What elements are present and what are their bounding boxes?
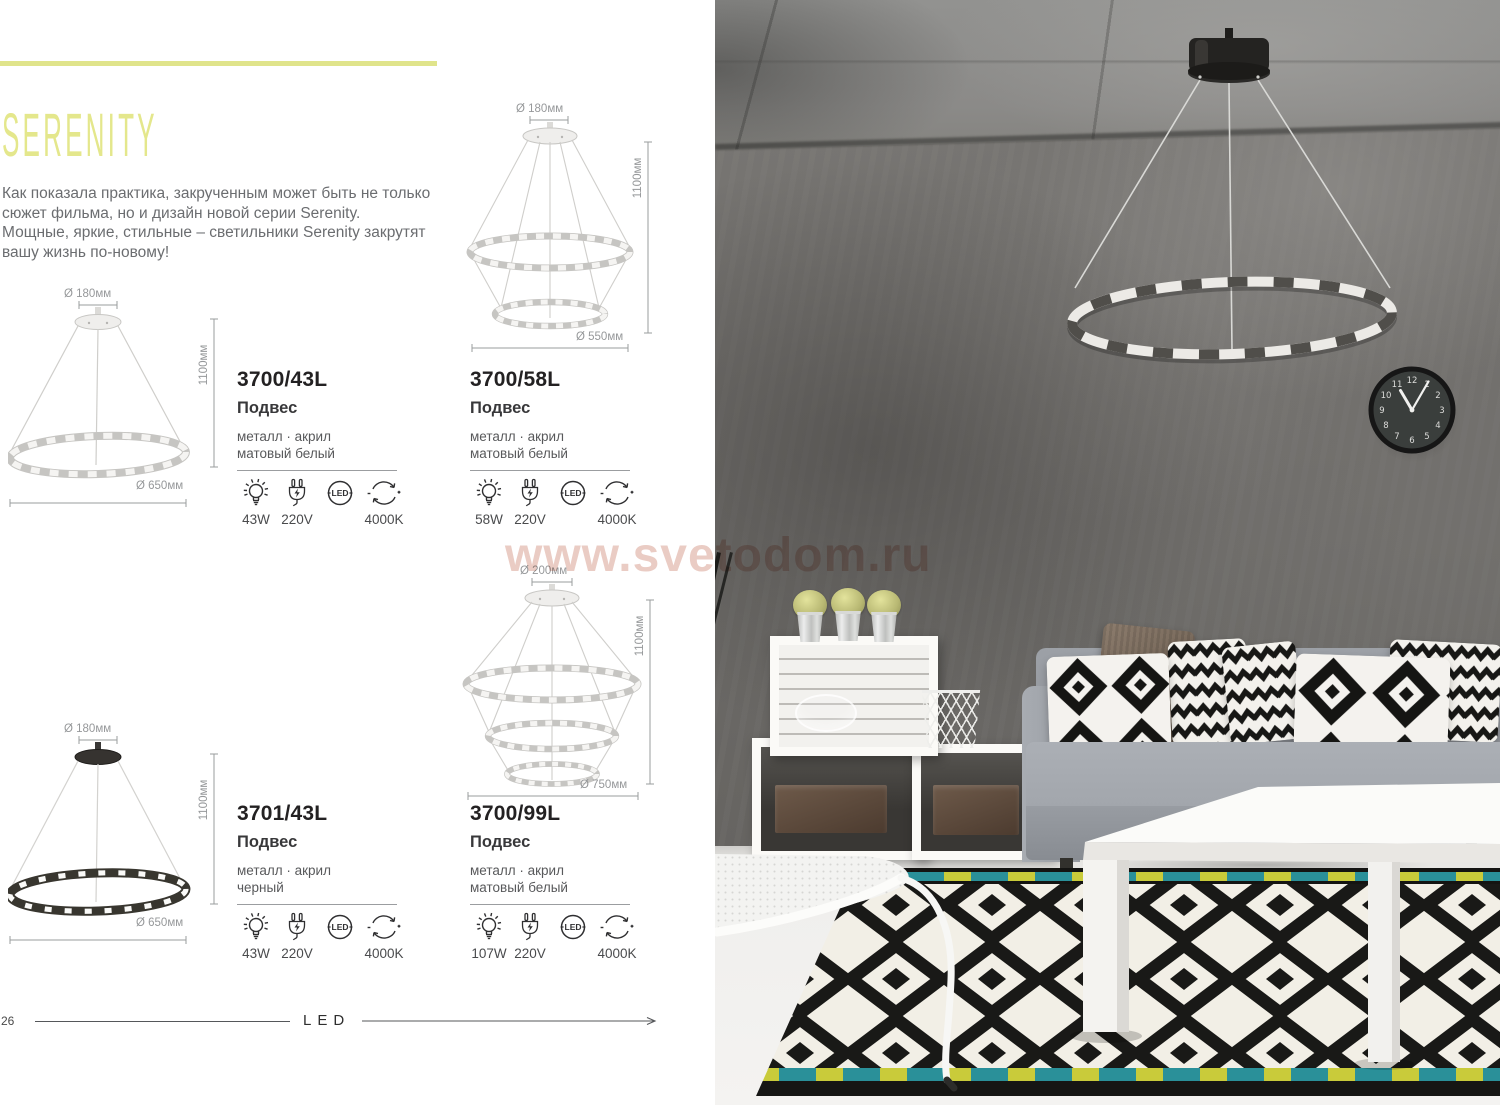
dim-label-height: 1100мм [632, 158, 644, 199]
series-title: SERENITY [2, 100, 158, 171]
clock-numeral: 2 [1435, 391, 1440, 401]
product-finish: черный [237, 879, 407, 896]
wattage-value: 43W [237, 946, 275, 961]
clock-numeral: 4 [1435, 421, 1440, 431]
led-label: LED [332, 922, 349, 932]
cord-plug-tip [947, 1080, 954, 1088]
product-materials: металл · акрил [237, 428, 407, 445]
product-type: Подвес [237, 833, 407, 852]
plug-icon [275, 476, 319, 510]
plant-bucket [834, 611, 862, 641]
dim-label-bottom: Ø 650мм [136, 917, 183, 929]
color-temp-icon [594, 910, 640, 944]
page-number: 26 [1, 1014, 14, 1028]
footer-rule-left [35, 1021, 290, 1022]
product-drawing-3700-58L: Ø 180мм 1100мм Ø 550мм [452, 90, 664, 358]
voltage-value: 220V [508, 946, 552, 961]
divider [237, 904, 397, 905]
storage-crate [770, 636, 938, 756]
led-icon: LED [319, 476, 361, 510]
color-temp-value: 4000K [361, 512, 407, 527]
ring-drawing [9, 870, 186, 914]
pendant-lamp [1060, 20, 1420, 370]
product-code: 3700/99L [470, 802, 640, 826]
product-materials: металл · акрил [470, 862, 640, 879]
clock-numeral: 5 [1424, 432, 1429, 442]
accent-line [0, 61, 437, 66]
brown-box [933, 785, 1019, 835]
product-finish: матовый белый [470, 445, 640, 462]
product-materials: металл · акрил [470, 428, 640, 445]
color-temp-icon [361, 910, 407, 944]
glass-bowl [795, 694, 857, 732]
dim-label-top: Ø 180мм [64, 723, 111, 735]
dim-label-height: 1100мм [198, 780, 210, 821]
product-code: 3701/43L [237, 802, 407, 826]
product-finish: матовый белый [470, 879, 640, 896]
product-spec-3700-43L: 3700/43L Подвес металл · акрил матовый б… [237, 368, 407, 527]
bulb-icon [237, 910, 275, 944]
product-type: Подвес [470, 833, 640, 852]
product-spec-3700-58L: 3700/58L Подвес металл · акрил матовый б… [470, 368, 640, 527]
dim-label-top: Ø 180мм [516, 103, 563, 115]
bulb-icon [470, 910, 508, 944]
product-type: Подвес [237, 399, 407, 418]
wall-clock: 12 1 2 3 4 5 6 7 8 9 10 11 [1368, 366, 1456, 454]
clock-numeral: 9 [1379, 406, 1384, 416]
led-icon: LED [552, 476, 594, 510]
product-code: 3700/43L [237, 368, 407, 392]
product-finish: матовый белый [237, 445, 407, 462]
diamond-pillow [1293, 653, 1450, 752]
clock-numeral: 7 [1394, 432, 1399, 442]
product-drawing-3700-43L: Ø 180мм 1100мм Ø 650мм [8, 283, 233, 521]
intro-line: Как показала практика, закрученным может… [2, 184, 432, 204]
product-code: 3700/58L [470, 368, 640, 392]
color-temp-icon [361, 476, 407, 510]
plug-icon [508, 476, 552, 510]
product-spec-3701-43L: 3701/43L Подвес металл · акрил черный [237, 802, 407, 961]
product-type: Подвес [470, 399, 640, 418]
plug-icon [275, 910, 319, 944]
clock-numeral: 10 [1381, 391, 1392, 401]
color-temp-value: 4000K [594, 512, 640, 527]
divider [470, 470, 630, 471]
voltage-value: 220V [508, 512, 552, 527]
led-label: LED [565, 488, 582, 498]
wattage-value: 58W [470, 512, 508, 527]
dim-label-bottom: Ø 750мм [580, 779, 627, 791]
dim-label-height: 1100мм [198, 345, 210, 386]
ring-drawing [9, 433, 186, 477]
intro-line: вашу жизнь по-новому! [2, 243, 432, 263]
intro-line: сюжет фильма, но и дизайн новой серии Se… [2, 204, 432, 224]
clock-numeral: 11 [1392, 380, 1403, 390]
wire-chair [715, 840, 1015, 1105]
voltage-value: 220V [275, 512, 319, 527]
divider [470, 904, 630, 905]
led-label: LED [332, 488, 349, 498]
intro-paragraph: Как показала практика, закрученным может… [2, 184, 432, 262]
catalog-page: SERENITY Как показала практика, закручен… [0, 0, 1500, 1105]
category-label: LED [303, 1012, 350, 1029]
bulb-icon [470, 476, 508, 510]
led-icon: LED [319, 910, 361, 944]
product-materials: металл · акрил [237, 862, 407, 879]
bulb-icon [237, 476, 275, 510]
plant-bucket [796, 612, 824, 642]
wattage-value: 43W [237, 512, 275, 527]
watermark: www.svetodom.ru [505, 528, 932, 583]
led-label: LED [565, 922, 582, 932]
wattage-value: 107W [470, 946, 508, 961]
color-temp-icon [594, 476, 640, 510]
led-icon: LED [552, 910, 594, 944]
diamond-pillow [1046, 653, 1171, 752]
dim-label-top: Ø 180мм [64, 288, 111, 300]
dim-label-bottom: Ø 650мм [136, 480, 183, 492]
clock-numeral: 8 [1383, 421, 1388, 431]
dim-label-height: 1100мм [634, 616, 646, 657]
divider [237, 470, 397, 471]
color-temp-value: 4000K [594, 946, 640, 961]
product-spec-3700-99L: 3700/99L Подвес металл · акрил матовый б… [470, 802, 640, 961]
color-temp-value: 4000K [361, 946, 407, 961]
wire-basket [920, 690, 982, 748]
product-drawing-3700-99L: Ø 200мм 1100мм Ø 750мм [452, 556, 667, 802]
chevron-pillow [1221, 640, 1305, 745]
voltage-value: 220V [275, 946, 319, 961]
footer-arrow [362, 1013, 662, 1029]
power-cord [901, 878, 951, 1080]
product-drawing-3701-43L: Ø 180мм 1100мм Ø 650мм [8, 718, 233, 958]
brown-box [775, 785, 887, 833]
plant-bucket [870, 612, 898, 642]
intro-line: Мощные, яркие, стильные – светильники Se… [2, 223, 432, 243]
clock-numeral: 12 [1407, 376, 1418, 386]
dim-label-bottom: Ø 550мм [576, 331, 623, 343]
coffee-table [1020, 770, 1500, 1070]
plug-icon [508, 910, 552, 944]
clock-numeral: 3 [1439, 406, 1444, 416]
clock-numeral: 6 [1409, 436, 1414, 446]
